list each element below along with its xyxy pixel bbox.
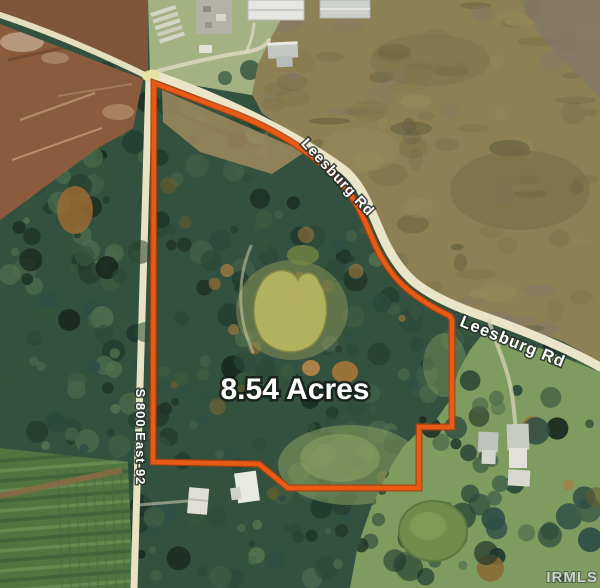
aerial-photo-canvas: Leesburg Rd Leesburg Rd S 800 East-92 8.… [0, 0, 600, 588]
road-label-s800-east: S 800 East-92 [133, 389, 148, 486]
mls-watermark: IRMLS [546, 569, 598, 586]
satellite-map: Leesburg Rd Leesburg Rd S 800 East-92 8.… [0, 0, 600, 588]
building-trailer [199, 45, 212, 53]
building-house-east-2 [507, 424, 531, 487]
crop-field-bottom-left [0, 448, 133, 588]
acreage-label: 8.54 Acres [220, 373, 369, 406]
building-house-south-2 [187, 487, 209, 515]
pond [254, 270, 327, 351]
lawn-pond [399, 501, 467, 561]
